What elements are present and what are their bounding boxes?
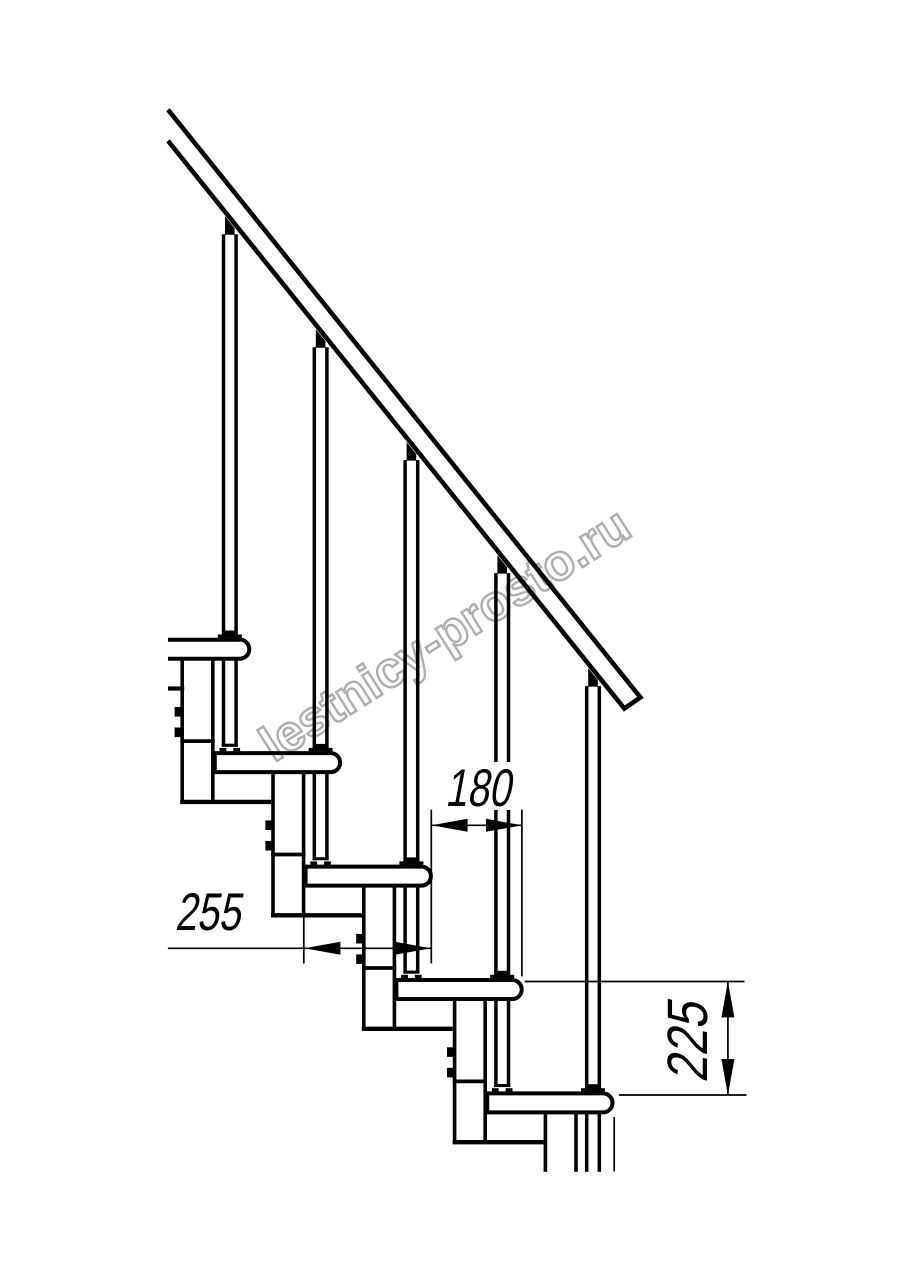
svg-text:225: 225 bbox=[657, 993, 720, 1086]
svg-text:180: 180 bbox=[443, 758, 519, 818]
svg-text:255: 255 bbox=[173, 882, 249, 942]
